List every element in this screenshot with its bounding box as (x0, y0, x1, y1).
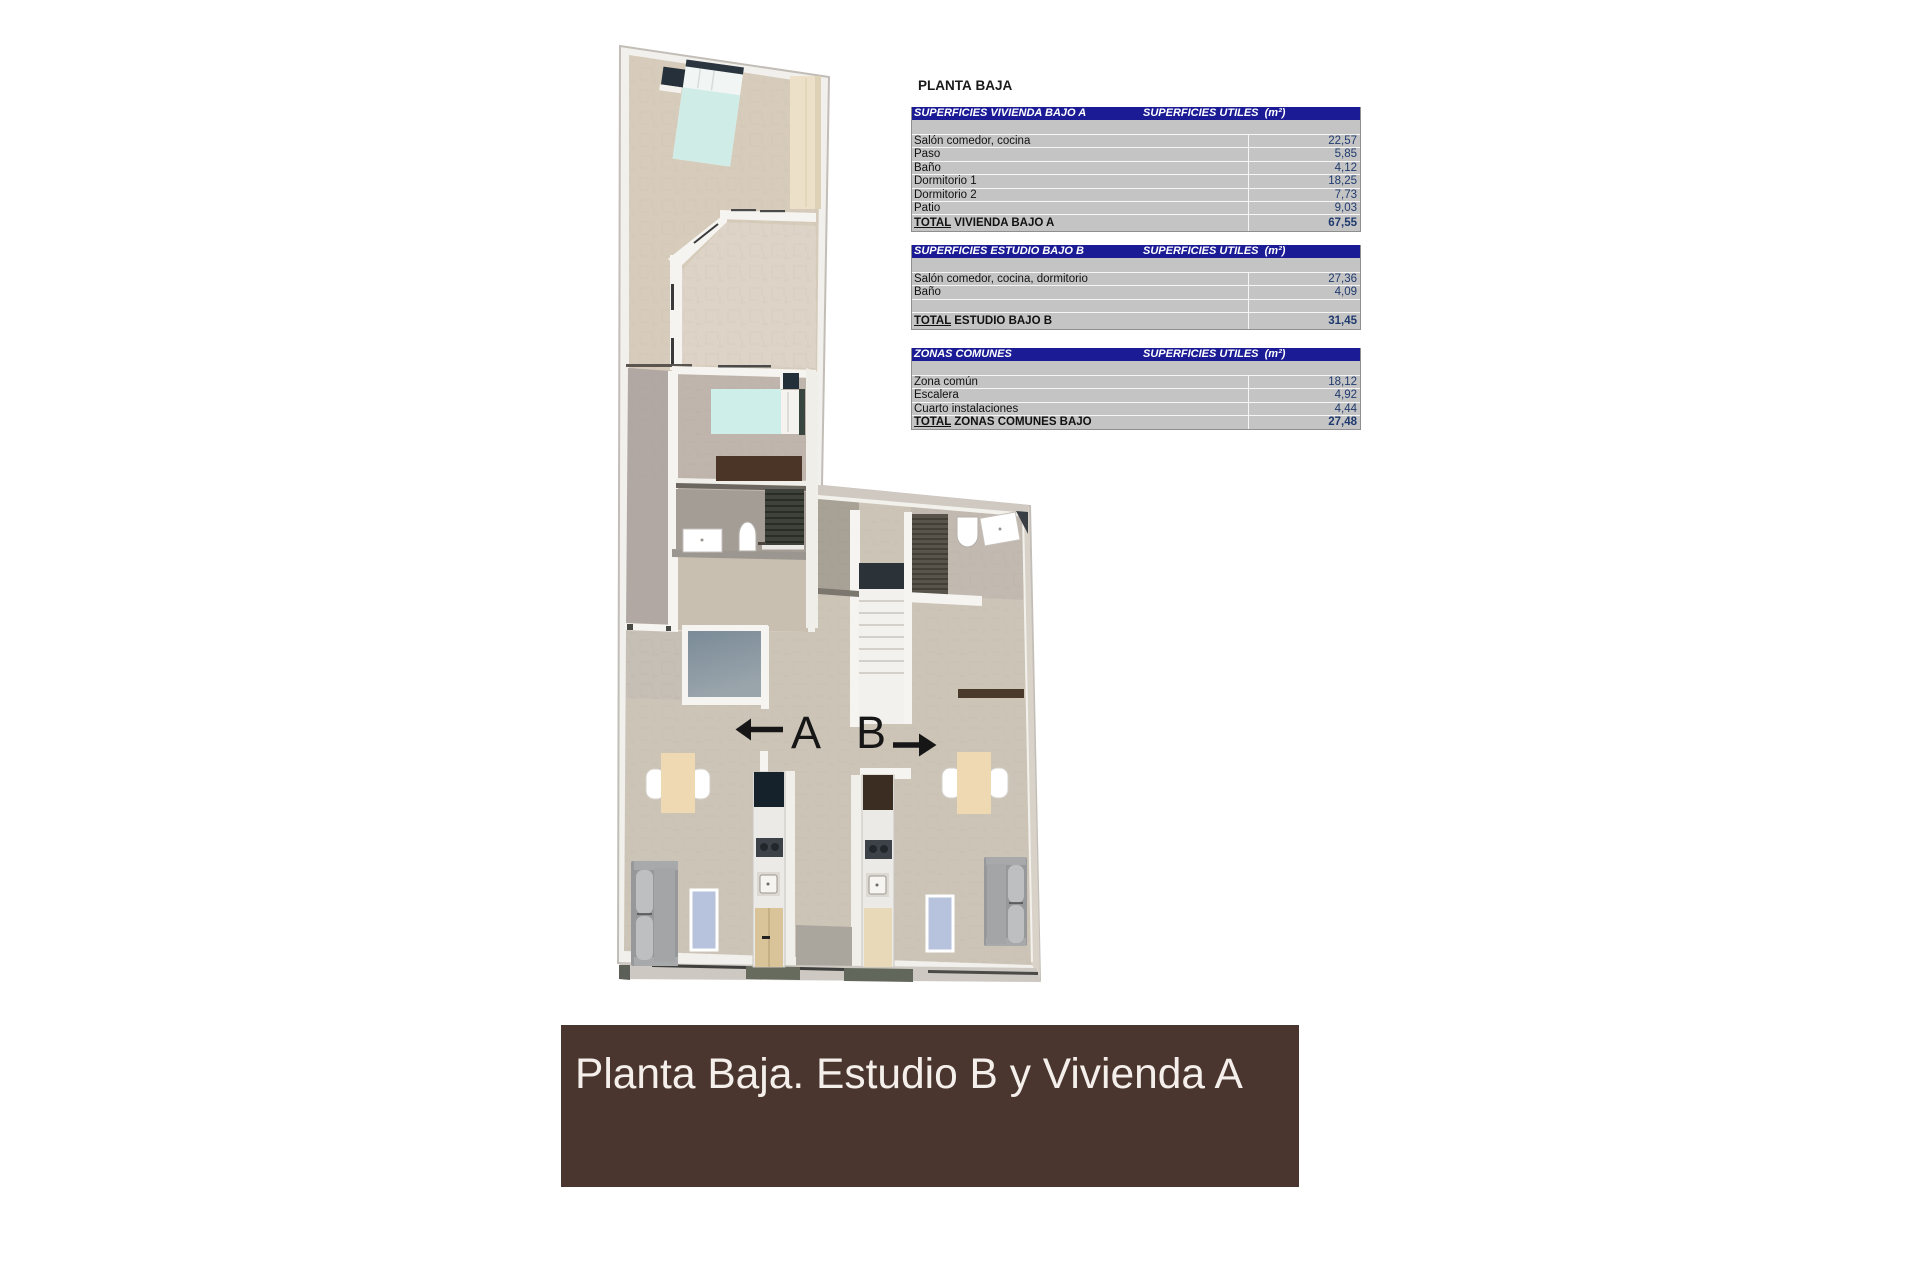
svg-text:A: A (791, 707, 821, 758)
svg-text:B: B (856, 707, 886, 758)
